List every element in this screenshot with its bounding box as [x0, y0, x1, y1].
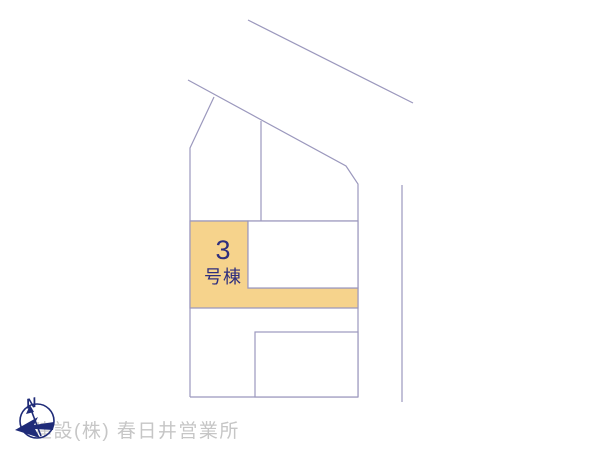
- road-edge-line: [248, 20, 413, 103]
- site-plan-canvas: 3 号棟 建設(株) 春日井営業所 N: [0, 0, 600, 450]
- plot-map: [0, 0, 600, 450]
- compass-icon: N: [13, 391, 65, 449]
- lot-number-suffix: 号棟: [191, 266, 255, 288]
- building-footprint-upper: [248, 221, 358, 288]
- building-footprint-lower: [255, 332, 358, 397]
- lot-3-label: 3 号棟: [191, 234, 255, 288]
- lot-number: 3: [191, 234, 255, 266]
